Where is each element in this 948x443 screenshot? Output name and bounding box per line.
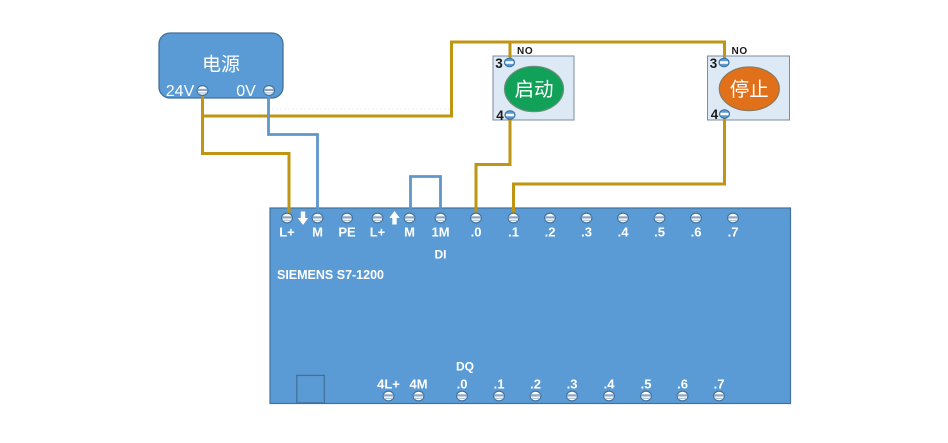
svg-text:.2: .2 — [545, 225, 556, 240]
svg-text:.7: .7 — [728, 225, 739, 240]
svg-text:.4: .4 — [618, 225, 630, 240]
svg-text:PE: PE — [338, 225, 356, 240]
svg-text:.4: .4 — [604, 377, 616, 392]
svg-text:.7: .7 — [714, 377, 725, 392]
svg-text:.3: .3 — [581, 225, 592, 240]
svg-text:电源: 电源 — [202, 54, 240, 76]
svg-text:1M: 1M — [431, 225, 449, 240]
svg-text:M: M — [312, 225, 323, 240]
svg-text:.3: .3 — [567, 377, 578, 392]
svg-text:SIEMENS S7-1200: SIEMENS S7-1200 — [277, 268, 384, 282]
svg-text:M: M — [404, 225, 415, 240]
svg-text:24V: 24V — [166, 83, 195, 100]
svg-text:4L+: 4L+ — [377, 377, 400, 392]
svg-text:.1: .1 — [508, 225, 519, 240]
svg-text:.5: .5 — [641, 377, 652, 392]
svg-text:停止: 停止 — [730, 79, 769, 101]
svg-text:DQ: DQ — [456, 360, 474, 374]
svg-text:.2: .2 — [530, 377, 541, 392]
svg-text:.0: .0 — [457, 377, 468, 392]
svg-text:3: 3 — [495, 56, 503, 71]
svg-text:L+: L+ — [370, 225, 386, 240]
svg-text:启动: 启动 — [514, 79, 553, 101]
svg-text:.5: .5 — [654, 225, 665, 240]
svg-text:.0: .0 — [471, 225, 482, 240]
svg-text:NO: NO — [517, 46, 533, 57]
svg-text:4: 4 — [711, 107, 719, 122]
svg-text:0V: 0V — [236, 83, 256, 100]
svg-text:DI: DI — [435, 248, 447, 262]
svg-text:4M: 4M — [409, 377, 427, 392]
svg-text:L+: L+ — [279, 225, 295, 240]
svg-text:.1: .1 — [494, 377, 505, 392]
svg-text:.6: .6 — [677, 377, 688, 392]
svg-text:NO: NO — [732, 46, 748, 57]
svg-text:3: 3 — [710, 56, 718, 71]
svg-text:4: 4 — [496, 108, 504, 123]
svg-text:.6: .6 — [691, 225, 702, 240]
